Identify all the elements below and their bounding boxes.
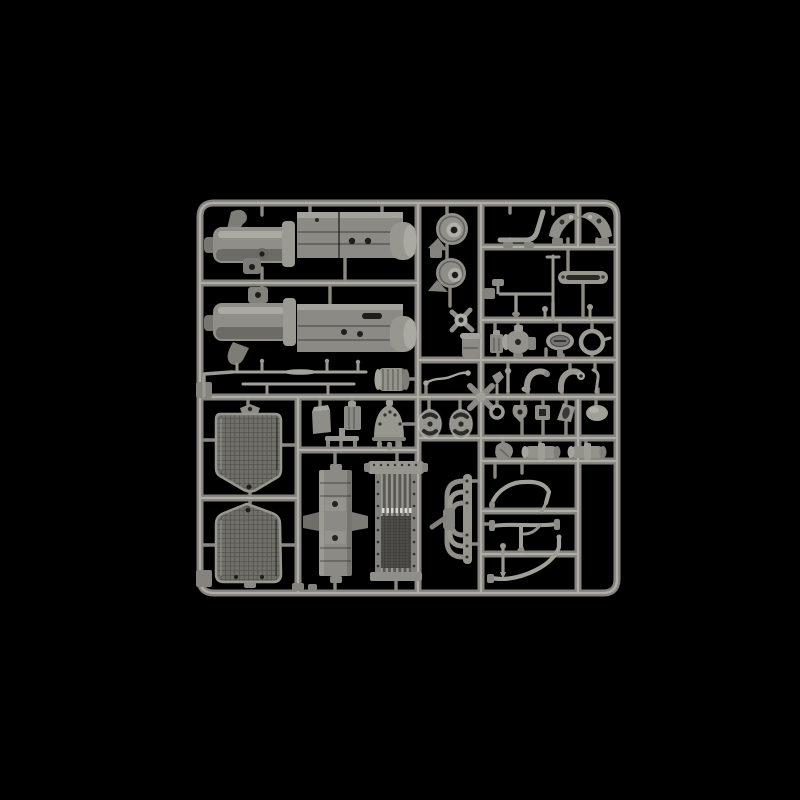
sprue-photo bbox=[0, 0, 800, 800]
vignette-overlay bbox=[0, 0, 800, 800]
photo-stage bbox=[0, 0, 800, 800]
